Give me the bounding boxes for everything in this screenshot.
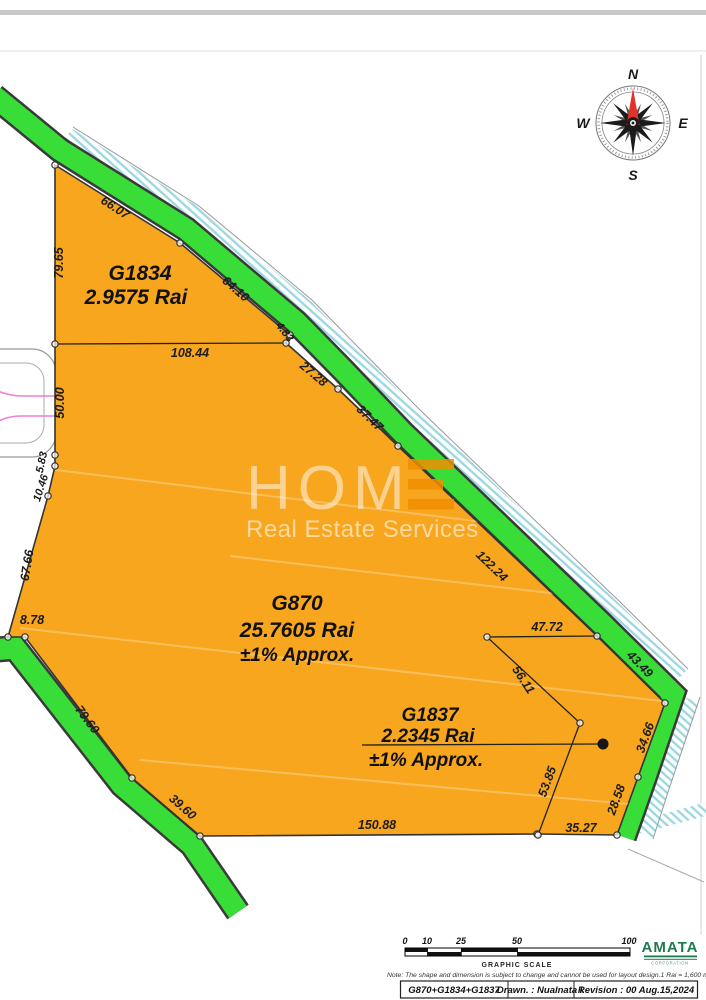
compass-e-label: E — [678, 115, 688, 131]
dim-35-27: 35.27 — [565, 821, 597, 835]
scale-bar — [405, 948, 630, 956]
compass-s-label: S — [628, 167, 638, 183]
scale-tick-25: 25 — [455, 936, 467, 946]
amata-logo-subtitle: CORPORATION — [651, 961, 688, 966]
compass-w-label: W — [576, 115, 591, 131]
scale-tick-100: 100 — [621, 936, 636, 946]
parcel-g1837-approx: ±1% Approx. — [369, 750, 483, 771]
interchange-sketch — [0, 349, 58, 457]
g1837-point-marker — [598, 739, 609, 750]
dim-79-65: 79.65 — [52, 246, 66, 278]
amata-logo: AMATA CORPORATION — [642, 939, 699, 966]
parcel-g1837-id: G1837 — [401, 705, 459, 726]
title-block: G870+G1834+G1837 Drawn. : Nualnata I. Re… — [401, 981, 698, 998]
amata-logo-text: AMATA — [642, 939, 699, 956]
page-top-rule — [0, 10, 706, 15]
title-block-drawn: Drawn. : Nualnata I. — [497, 985, 585, 996]
parcel-g870-area: 25.7605 Rai — [239, 619, 356, 642]
graphic-scale: 0 10 25 50 100 GRAPHIC SCALE — [402, 936, 636, 969]
compass-rose-icon: N E S W — [576, 66, 688, 183]
page-faint-rule — [0, 50, 706, 52]
scale-tick-50: 50 — [512, 936, 522, 946]
scale-tick-0: 0 — [402, 936, 407, 946]
dim-47-72: 47.72 — [530, 620, 562, 634]
watermark-tagline: Real Estate Services — [246, 516, 479, 543]
site-plan-svg: HOM Real Estate Services 66.07 79.65 64.… — [0, 0, 706, 1000]
watermark-brand-text: HOM — [246, 454, 412, 523]
dim-8-78: 8.78 — [20, 613, 44, 627]
parcel-g1834-area: 2.9575 Rai — [84, 286, 189, 309]
dim-150-88: 150.88 — [358, 818, 396, 832]
title-block-sheet: G870+G1834+G1837 — [408, 985, 500, 996]
footer-note: Note: The shape and dimension is subject… — [387, 972, 706, 979]
parcel-g870-id: G870 — [271, 592, 323, 615]
scale-tick-10: 10 — [422, 936, 432, 946]
parcel-g1837-area: 2.2345 Rai — [381, 726, 476, 747]
parcel-g1834-id: G1834 — [108, 262, 171, 285]
dim-50-00: 50.00 — [53, 387, 67, 418]
road-edge-extension — [628, 849, 704, 882]
dim-108-44: 108.44 — [171, 346, 209, 360]
survey-plan-page: HOM Real Estate Services 66.07 79.65 64.… — [0, 0, 706, 1000]
graphic-scale-label: GRAPHIC SCALE — [482, 962, 553, 969]
title-block-revision: Revision : 00 Aug.15,2024 — [578, 985, 695, 996]
compass-n-label: N — [628, 66, 639, 82]
parcel-g870-approx: ±1% Approx. — [240, 645, 354, 666]
page-right-rule — [700, 55, 702, 935]
